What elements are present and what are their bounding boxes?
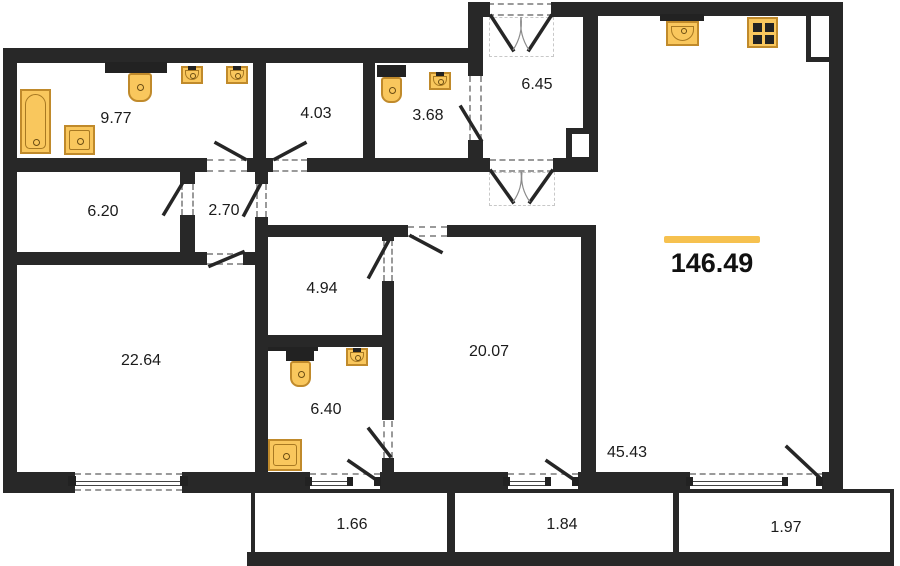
wall bbox=[17, 158, 207, 172]
drain bbox=[438, 79, 444, 85]
wall bbox=[382, 237, 394, 241]
wall bbox=[3, 48, 468, 63]
toilet-tank bbox=[286, 350, 314, 361]
total-area-label: 146.49 bbox=[642, 250, 782, 277]
niche-wall bbox=[806, 16, 811, 61]
door-opening-bedroom-large bbox=[207, 253, 243, 265]
floor-plan: 9.77 4.03 3.68 6.45 6.20 2.70 22.64 4.94… bbox=[0, 0, 900, 566]
drain bbox=[137, 84, 144, 91]
room-label-corridor: 2.70 bbox=[184, 203, 264, 219]
dressing-door-leaf bbox=[275, 143, 305, 159]
room-label-dressing: 4.03 bbox=[276, 106, 356, 122]
wall bbox=[363, 63, 375, 158]
burner bbox=[765, 35, 774, 44]
balcony-base-wall bbox=[247, 552, 894, 566]
door-opening-bedroom bbox=[408, 226, 447, 237]
toilet bbox=[128, 73, 152, 102]
wall bbox=[3, 472, 75, 493]
bathtub bbox=[20, 89, 51, 154]
wall bbox=[583, 16, 598, 130]
drain bbox=[355, 355, 361, 361]
wall bbox=[468, 63, 483, 76]
wall bbox=[243, 252, 268, 265]
burner bbox=[753, 23, 762, 32]
wall bbox=[581, 225, 596, 472]
wall bbox=[268, 225, 408, 237]
wall bbox=[255, 335, 394, 347]
balcony-label-left: 1.66 bbox=[302, 517, 402, 533]
drain bbox=[77, 138, 84, 145]
wall-sink bbox=[181, 66, 203, 84]
wall bbox=[829, 2, 843, 490]
wall bbox=[180, 215, 195, 252]
room-label-bathroom-laundry: 6.40 bbox=[286, 402, 366, 418]
kitchen-counter bbox=[660, 14, 704, 21]
room-label-bathroom-main: 9.77 bbox=[76, 111, 156, 127]
wall bbox=[17, 252, 207, 265]
wall bbox=[382, 281, 394, 420]
wall bbox=[468, 140, 483, 158]
entry-door-swing-area bbox=[489, 17, 554, 57]
wall bbox=[182, 472, 310, 493]
toilet bbox=[290, 361, 311, 387]
balcony-label-middle: 1.84 bbox=[512, 517, 612, 533]
hall-door-swing-area bbox=[489, 172, 555, 206]
door-opening-wardrobe bbox=[383, 240, 393, 281]
entry-door-opening bbox=[488, 3, 553, 16]
drain bbox=[298, 371, 305, 378]
window-sill bbox=[310, 481, 350, 486]
bathroom-main-door-leaf bbox=[216, 143, 245, 159]
hall-door-opening bbox=[490, 159, 553, 172]
toilet bbox=[381, 77, 402, 103]
door-opening-bathroom-laundry bbox=[383, 421, 393, 458]
door-opening-dressing bbox=[273, 159, 307, 172]
door-opening-wc bbox=[469, 76, 482, 140]
drain bbox=[190, 73, 196, 79]
wall-sink bbox=[346, 348, 368, 366]
burner bbox=[765, 23, 774, 32]
washer-drum bbox=[283, 453, 290, 460]
stove bbox=[747, 17, 778, 48]
window-bedroom-large bbox=[75, 473, 182, 491]
wall bbox=[307, 158, 468, 172]
total-area-underline bbox=[664, 236, 760, 243]
wall bbox=[255, 158, 268, 184]
toilet-tank bbox=[105, 62, 167, 73]
window-sill bbox=[508, 481, 548, 486]
drain bbox=[33, 139, 40, 146]
room-label-bedroom-large: 22.64 bbox=[91, 353, 191, 369]
room-label-wc: 3.68 bbox=[388, 108, 468, 124]
room-label-hallway: 6.20 bbox=[63, 204, 143, 220]
room-label-wardrobe: 4.94 bbox=[282, 281, 362, 297]
kitchen-sink bbox=[666, 21, 699, 46]
niche-wall bbox=[806, 57, 829, 62]
wall bbox=[380, 472, 508, 493]
drain bbox=[235, 73, 241, 79]
window-sill bbox=[690, 481, 784, 486]
wall bbox=[822, 472, 829, 493]
room-label-bedroom: 20.07 bbox=[439, 344, 539, 360]
wall bbox=[447, 225, 596, 237]
balcony-label-right: 1.97 bbox=[736, 520, 836, 536]
wall-sink bbox=[226, 66, 248, 84]
wall bbox=[468, 158, 490, 172]
toilet-tank bbox=[377, 65, 406, 77]
drain bbox=[681, 28, 687, 34]
washing-machine bbox=[268, 439, 302, 471]
hallway-door-leaf bbox=[164, 184, 182, 214]
drain bbox=[389, 87, 396, 94]
wall bbox=[382, 458, 394, 472]
wall bbox=[3, 48, 17, 493]
burner bbox=[753, 35, 762, 44]
room-label-entry-hall: 6.45 bbox=[497, 77, 577, 93]
room-label-living-kitchen: 45.43 bbox=[577, 445, 677, 461]
wall-sink bbox=[429, 72, 451, 90]
wall bbox=[578, 472, 690, 493]
shaft-cavity bbox=[572, 134, 589, 157]
wall bbox=[468, 2, 490, 17]
wall bbox=[253, 63, 266, 158]
bedroom-door-leaf bbox=[411, 236, 441, 252]
window-sill bbox=[75, 481, 182, 486]
door-opening-bathroom-main bbox=[207, 159, 247, 172]
wall bbox=[180, 172, 195, 184]
pedestal-sink bbox=[64, 125, 95, 155]
wall bbox=[583, 2, 843, 16]
